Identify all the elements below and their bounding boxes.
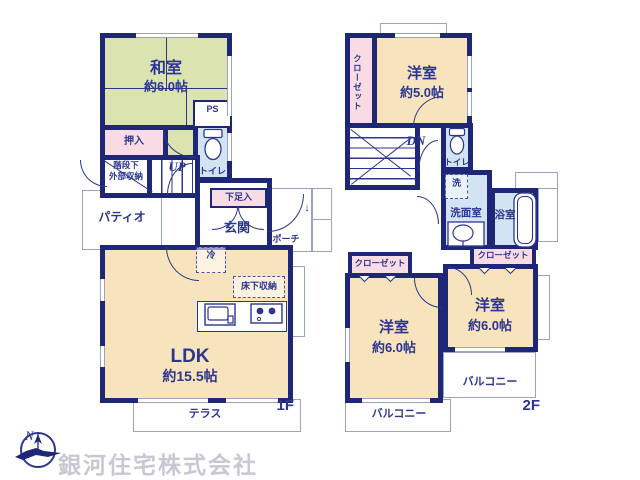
folding-door-mark [384,275,397,283]
stair-storage-line1: 階段下 [102,161,150,170]
oshiire-label: 押入 [107,136,161,147]
window [455,347,505,352]
bedroom6e-bay-window [536,275,550,340]
window [100,279,105,301]
porch-steps [312,188,332,252]
bedroom6w-name: 洋室 [364,320,424,337]
toilet-1f-label: トイレ [197,167,228,177]
bedroom6e-name: 洋室 [460,298,520,315]
ldk-size: 約15.5帖 [150,369,230,384]
closet-e-label: クローゼット [474,251,532,260]
ldk-bay-window [291,266,305,337]
floor1-label: 1F [254,398,294,415]
stair-storage-line2: 外部収納 [102,172,150,181]
window [362,398,430,403]
bedroom6w-size: 約6.0帖 [360,341,428,355]
floor-storage-label: 床下収納 [235,282,283,292]
compass-n-letter: N [24,428,35,443]
washroom-label: 洗面室 [442,208,490,220]
stove-icon [250,303,283,324]
window [136,33,198,38]
balcony-west-label: バルコニー [362,408,436,420]
entry-arrow: ↓ [300,202,314,214]
kitchen-sink-icon [204,303,236,327]
folding-door-mark [358,275,371,283]
floorplan-canvas: 和室 約6.0帖 押入 PS トイレ 階段下 外部収納 UP パティオ 下足入 … [0,0,640,480]
folding-door-mark [504,267,517,275]
up-label: UP [157,160,197,174]
ldk-name: LDK [158,347,222,368]
fridge-label: 冷 [198,251,224,261]
closet-w-label: クローゼット [352,259,408,268]
closet-nw-label: クローゼット [352,44,361,120]
compass-north-icon: N [12,423,64,475]
window [138,398,208,403]
bath-right-window [538,188,558,242]
bedroom5-name: 洋室 [392,66,452,83]
balcony-east-label: バルコニー [453,376,527,388]
ps-label: PS [196,105,229,115]
window [467,56,472,88]
laundry-label: 洗 [446,179,467,189]
door-arc-washroom [417,196,439,224]
company-name: 銀河住宅株式会社 [58,446,258,480]
floor2-label: 2F [500,398,540,415]
window [345,328,350,362]
washitsu-size: 約6.0帖 [130,80,202,94]
window [100,346,105,367]
patio-label: パティオ [87,211,157,224]
window [395,33,440,38]
balcony-east-outline [443,352,536,398]
washitsu-name: 和室 [134,60,198,78]
dn-label: DN [398,134,434,148]
folding-door-mark [478,267,491,275]
bedroom5-size: 約5.0帖 [388,86,456,100]
porch-step-line [313,219,331,220]
washbasin-icon [447,221,485,247]
terrace-label: テラス [170,408,240,420]
shoebox-label: 下足入 [212,193,265,203]
toilet-icon-2f [447,127,467,157]
window [467,92,472,116]
toilet-2f-label: トイレ [443,158,471,167]
bedroom6e-size: 約6.0帖 [456,319,524,333]
genkan-label: 玄関 [215,221,259,235]
window [227,133,232,161]
bathroom-label: 浴室 [490,210,520,222]
porch-label: ポーチ [266,235,306,245]
toilet-icon-1f [201,128,225,164]
